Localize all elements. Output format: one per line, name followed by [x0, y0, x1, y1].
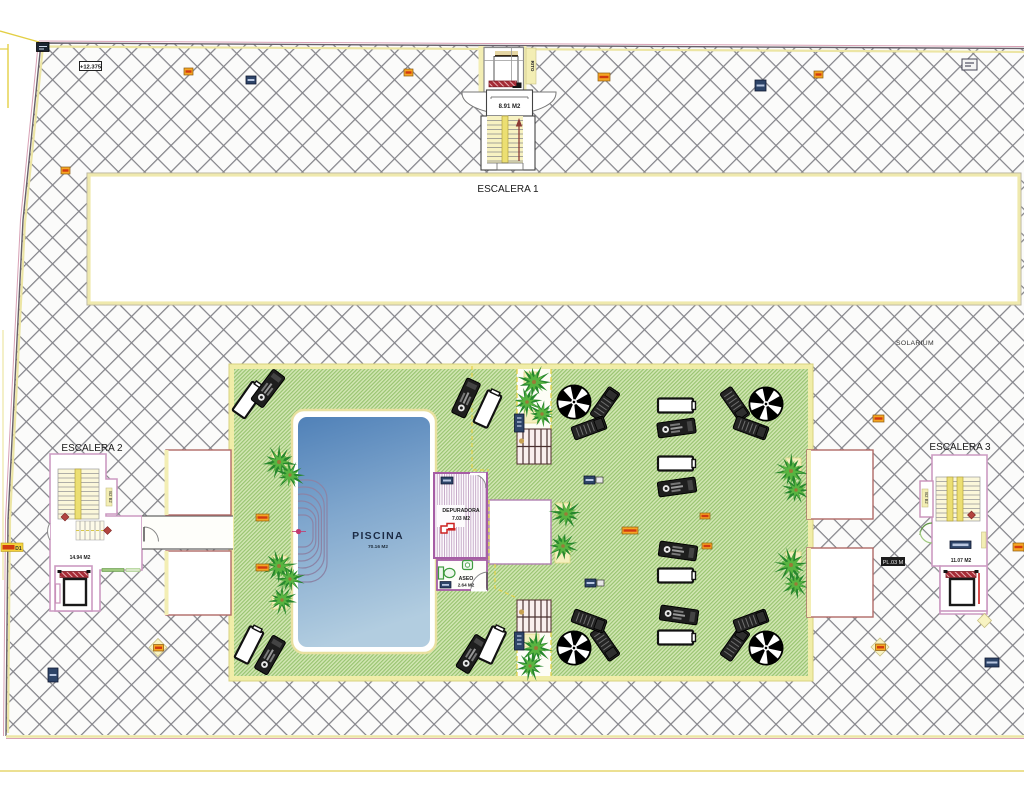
svg-text:B2 B2: B2 B2 — [924, 492, 929, 504]
svg-text:B2 B2: B2 B2 — [108, 491, 113, 503]
svg-text:7.03 M2: 7.03 M2 — [452, 516, 470, 522]
svg-text:RITO: RITO — [530, 61, 535, 72]
svg-text:ESCALERA 2: ESCALERA 2 — [61, 443, 123, 454]
svg-text:PISCINA: PISCINA — [352, 530, 404, 542]
svg-text:DEPURADORA: DEPURADORA — [442, 508, 479, 514]
svg-text:ESCALERA 1: ESCALERA 1 — [477, 184, 539, 195]
svg-text:14.94 M2: 14.94 M2 — [70, 555, 91, 561]
svg-text:SOLARIUM: SOLARIUM — [896, 340, 934, 347]
svg-text:+12.375: +12.375 — [80, 64, 102, 70]
svg-text:D1: D1 — [15, 546, 22, 552]
svg-text:PL.03 M: PL.03 M — [883, 560, 904, 566]
svg-text:70.16 M2: 70.16 M2 — [368, 544, 388, 550]
svg-text:8.91 M2: 8.91 M2 — [499, 104, 521, 110]
svg-text:2.64 M2: 2.64 M2 — [458, 583, 475, 588]
svg-text:ASEO: ASEO — [459, 576, 474, 582]
svg-text:11.07 M2: 11.07 M2 — [951, 558, 972, 564]
svg-text:ESCALERA 3: ESCALERA 3 — [929, 442, 991, 453]
